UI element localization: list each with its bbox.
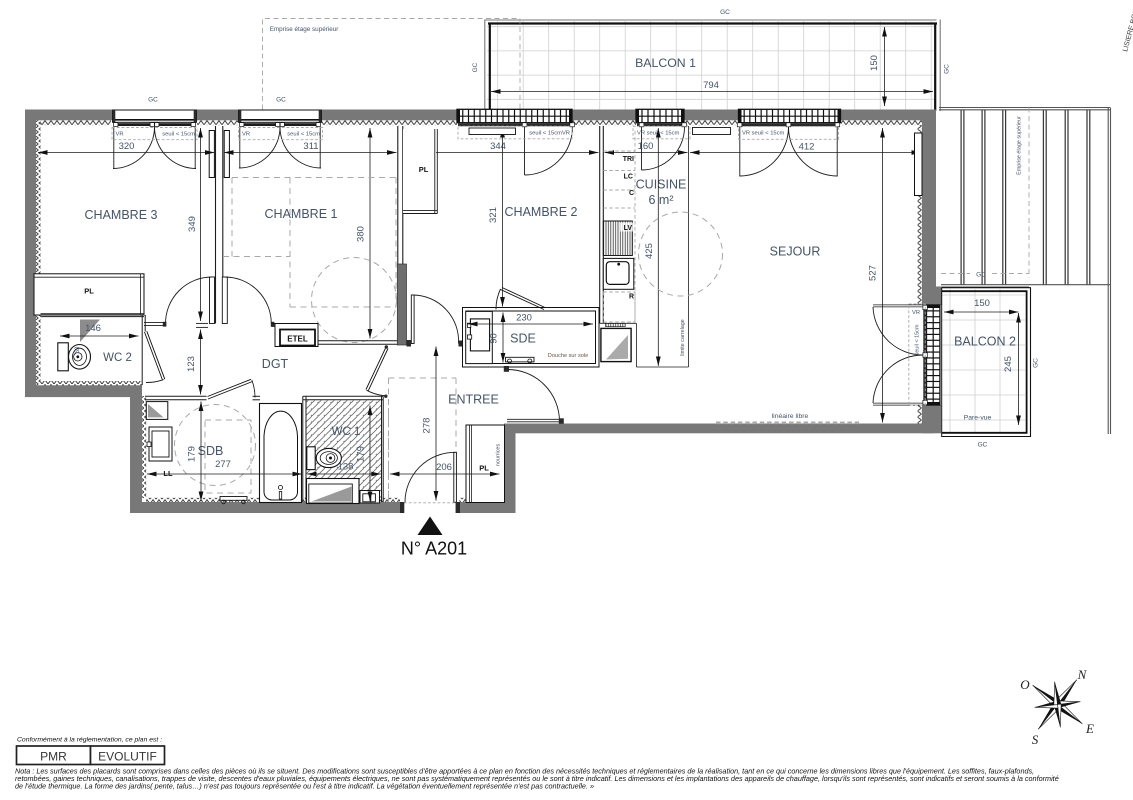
svg-text:nourrices: nourrices [496,444,502,466]
svg-text:CUISINE: CUISINE [636,178,687,192]
svg-text:seuil < 15cm: seuil < 15cm [162,132,195,138]
svg-text:GC: GC [978,442,988,449]
svg-text:SEJOUR: SEJOUR [770,245,821,259]
svg-text:seuil < 15cm: seuil < 15cm [915,324,921,355]
svg-text:320: 320 [119,141,135,152]
svg-text:DGT: DGT [262,357,289,371]
svg-text:Pare-vue: Pare-vue [964,415,992,422]
svg-text:794: 794 [703,80,719,91]
svg-text:63: 63 [75,346,81,353]
svg-text:LC: LC [624,174,633,181]
svg-text:O: O [1020,677,1030,692]
svg-text:GC: GC [1033,358,1040,368]
svg-text:PL: PL [419,165,429,174]
svg-text:Conformément à la réglementati: Conformément à la réglementation, ce pla… [17,737,162,744]
svg-text:380: 380 [356,226,367,242]
svg-text:160: 160 [638,141,654,152]
svg-text:123: 123 [186,356,197,372]
svg-text:311: 311 [303,141,318,152]
svg-text:321: 321 [488,207,499,223]
svg-text:SDB: SDB [198,444,224,458]
svg-text:GC: GC [976,272,986,279]
svg-text:SDE: SDE [510,332,536,346]
svg-text:BALCON 2: BALCON 2 [954,335,1016,349]
svg-text:Douche sur sole: Douche sur sole [548,353,588,359]
svg-text:PL: PL [479,464,489,473]
svg-text:LL: LL [163,469,173,478]
svg-text:S: S [1032,732,1039,747]
svg-text:VR: VR [242,132,250,138]
svg-text:de l'étude thermique. La forme: de l'étude thermique. La forme des jardi… [15,782,594,791]
svg-text:278: 278 [422,418,433,434]
svg-text:limite carrelage: limite carrelage [680,319,686,356]
svg-text:LV: LV [624,225,633,232]
svg-text:6 m²: 6 m² [649,193,674,207]
svg-text:Emprise étage supérieur: Emprise étage supérieur [270,26,339,33]
svg-text:179: 179 [356,446,367,462]
svg-text:TRI: TRI [623,156,634,163]
svg-text:R: R [629,294,634,301]
svg-text:277: 277 [215,459,231,470]
svg-text:90: 90 [489,333,500,344]
svg-text:150: 150 [869,55,880,71]
svg-text:CHAMBRE 1: CHAMBRE 1 [265,207,338,221]
svg-text:ETEL: ETEL [287,335,308,344]
svg-text:245: 245 [1003,356,1014,372]
svg-text:CHAMBRE 2: CHAMBRE 2 [505,205,578,219]
svg-text:GC: GC [472,62,479,72]
svg-text:WC 1: WC 1 [332,426,361,438]
svg-text:E: E [1085,721,1094,736]
svg-text:BALCON 1: BALCON 1 [635,56,696,70]
svg-text:GC: GC [944,64,951,74]
svg-text:seuil < 15cmVR: seuil < 15cmVR [529,131,570,137]
svg-text:344: 344 [490,141,506,152]
svg-text:N° A201: N° A201 [401,539,467,559]
svg-text:527: 527 [868,265,879,281]
svg-text:146: 146 [85,323,101,334]
svg-text:425: 425 [644,243,655,259]
svg-text:206: 206 [436,462,452,473]
svg-text:GC: GC [720,9,730,16]
svg-text:linéaire libre: linéaire libre [772,413,809,420]
svg-text:seuil < 15cm: seuil < 15cm [287,132,320,138]
svg-text:GC: GC [148,97,158,104]
svg-text:Emprise étage supérieur: Emprise étage supérieur [1017,116,1023,175]
svg-text:EVOLUTIF: EVOLUTIF [98,749,157,763]
svg-text:VR: VR [116,132,124,138]
svg-text:GC: GC [276,97,286,104]
svg-text:412: 412 [799,142,815,153]
svg-text:N: N [1077,667,1088,682]
svg-text:230: 230 [516,313,532,324]
svg-text:179: 179 [187,446,198,462]
svg-text:CHAMBRE 3: CHAMBRE 3 [85,208,158,222]
svg-text:PL: PL [84,287,94,296]
svg-text:349: 349 [187,216,198,232]
svg-text:138: 138 [338,462,354,473]
svg-text:WC 2: WC 2 [103,352,132,364]
svg-text:C: C [629,190,634,197]
svg-text:150: 150 [974,298,990,309]
svg-text:VR: VR [912,310,920,316]
svg-text:PMR: PMR [40,749,67,763]
svg-text:VR seuil < 15cm: VR seuil < 15cm [742,131,785,137]
